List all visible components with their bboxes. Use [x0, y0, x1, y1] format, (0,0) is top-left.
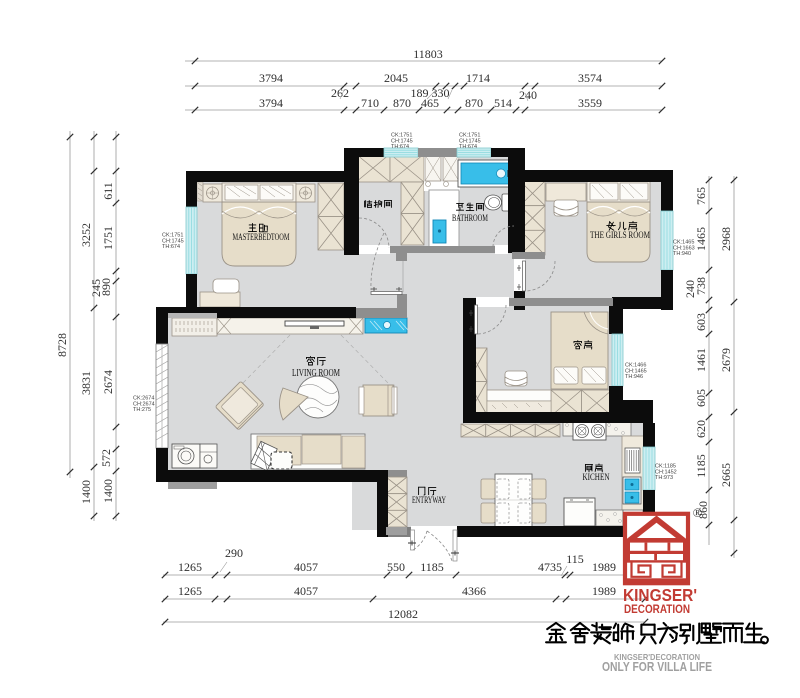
svg-text:245: 245: [89, 279, 103, 297]
svg-text:765: 765: [694, 187, 708, 205]
svg-text:4366: 4366: [462, 584, 486, 598]
svg-text:3794: 3794: [259, 96, 283, 110]
svg-text:8728: 8728: [55, 333, 69, 357]
svg-text:262: 262: [331, 86, 349, 100]
svg-text:710: 710: [361, 96, 379, 110]
svg-text:1265: 1265: [178, 560, 202, 574]
svg-text:1400: 1400: [79, 480, 93, 504]
svg-text:115: 115: [566, 552, 584, 566]
svg-text:240: 240: [519, 88, 537, 102]
svg-text:870: 870: [465, 96, 483, 110]
svg-text:KINGSER': KINGSER': [623, 585, 697, 605]
svg-text:2045: 2045: [384, 71, 408, 85]
svg-text:MASTERBEDTOOM: MASTERBEDTOOM: [233, 233, 290, 243]
svg-text:465: 465: [421, 96, 439, 110]
svg-text:2968: 2968: [719, 227, 733, 251]
svg-text:2674: 2674: [101, 370, 115, 394]
svg-text:TH:674: TH:674: [459, 144, 477, 150]
svg-text:1461: 1461: [694, 348, 708, 372]
svg-text:THE GIRLS ROOM: THE GIRLS ROOM: [590, 231, 650, 241]
svg-text:TH:275: TH:275: [133, 407, 151, 413]
svg-text:3574: 3574: [578, 71, 602, 85]
svg-text:1185: 1185: [420, 560, 444, 574]
svg-text:3794: 3794: [259, 71, 283, 85]
svg-text:620: 620: [694, 420, 708, 438]
svg-text:DECORATION: DECORATION: [624, 604, 690, 616]
svg-text:1751: 1751: [101, 226, 115, 250]
svg-text:870: 870: [393, 96, 411, 110]
svg-text:BATHROOM: BATHROOM: [452, 214, 488, 224]
svg-text:2679: 2679: [719, 348, 733, 372]
svg-text:1465: 1465: [694, 227, 708, 251]
svg-text:3831: 3831: [79, 371, 93, 395]
svg-text:ENTRYWAY: ENTRYWAY: [412, 496, 446, 506]
svg-text:1714: 1714: [466, 71, 490, 85]
svg-text:TH:973: TH:973: [655, 475, 673, 481]
svg-text:3559: 3559: [578, 96, 602, 110]
svg-text:11803: 11803: [413, 47, 443, 61]
svg-text:240: 240: [683, 280, 697, 298]
svg-text:572: 572: [99, 449, 113, 467]
svg-text:TH:940: TH:940: [673, 251, 691, 257]
svg-text:514: 514: [494, 96, 512, 110]
svg-text:3252: 3252: [79, 223, 93, 247]
svg-text:1265: 1265: [178, 584, 202, 598]
svg-text:1989: 1989: [592, 560, 616, 574]
svg-text:4057: 4057: [294, 584, 318, 598]
svg-text:605: 605: [694, 389, 708, 407]
svg-text:2665: 2665: [719, 463, 733, 487]
svg-text:611: 611: [101, 182, 115, 200]
svg-text:550: 550: [387, 560, 405, 574]
svg-text:603: 603: [694, 313, 708, 331]
svg-text:TH:674: TH:674: [162, 244, 180, 250]
svg-text:®: ®: [693, 506, 703, 520]
svg-text:KICHEN: KICHEN: [583, 473, 610, 483]
svg-text:290: 290: [225, 546, 243, 560]
svg-text:LIVING ROOM: LIVING ROOM: [292, 368, 340, 379]
svg-text:4057: 4057: [294, 560, 318, 574]
svg-text:1989: 1989: [592, 584, 616, 598]
svg-text:12082: 12082: [388, 607, 418, 621]
svg-text:1400: 1400: [101, 479, 115, 503]
svg-text:TH:674: TH:674: [391, 144, 409, 150]
svg-text:TH:946: TH:946: [625, 374, 643, 380]
svg-text:1185: 1185: [694, 454, 708, 478]
svg-text:4735: 4735: [538, 560, 562, 574]
svg-text:ONLY FOR VILLA LIFE: ONLY FOR VILLA LIFE: [602, 660, 712, 674]
